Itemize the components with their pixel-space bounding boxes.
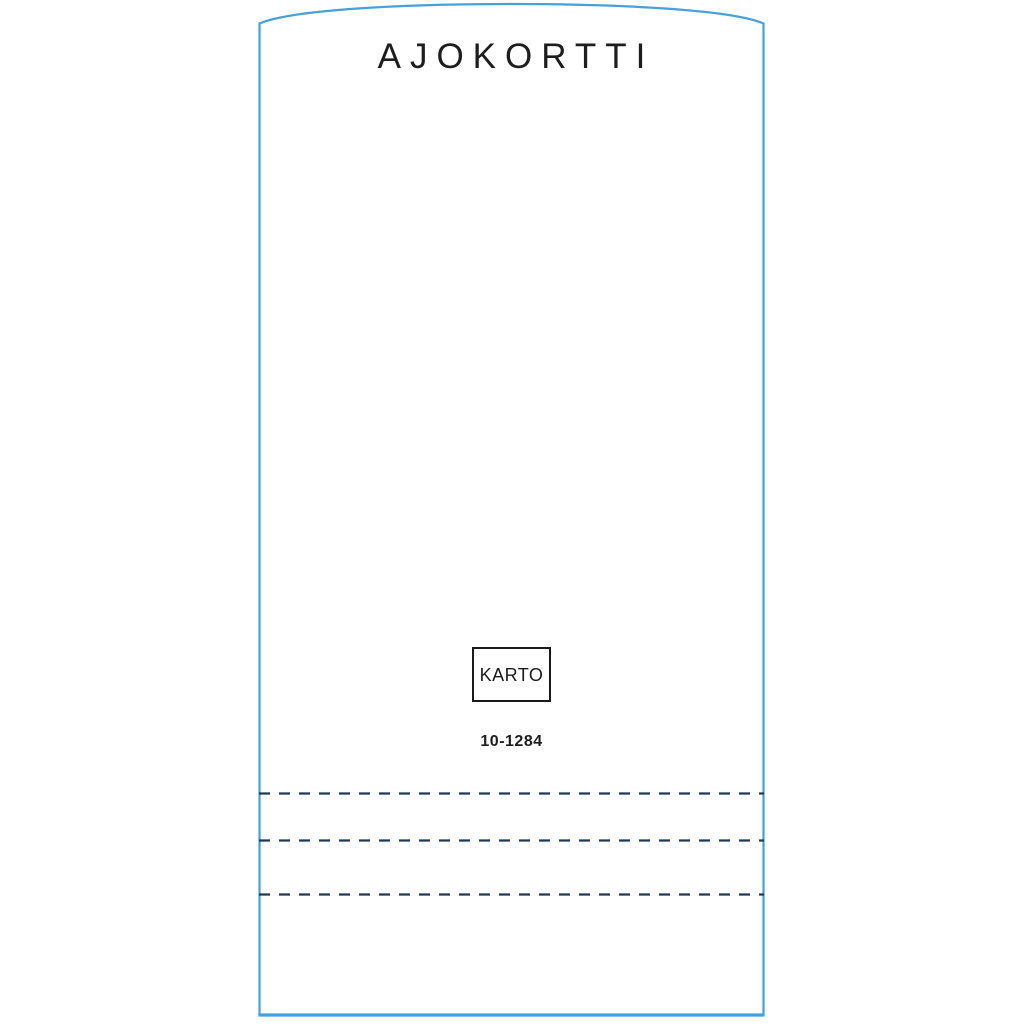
page-title: AJOKORTTI — [259, 39, 764, 74]
product-code: 10-1284 — [259, 734, 764, 750]
sleeve-outline — [260, 4, 764, 1015]
brand-logo-label: KARTO — [480, 666, 544, 684]
dieline-drawing — [0, 0, 1024, 1024]
dieline-canvas: AJOKORTTI KARTO 10-1284 — [0, 0, 1024, 1024]
brand-logo-box: KARTO — [472, 647, 551, 702]
